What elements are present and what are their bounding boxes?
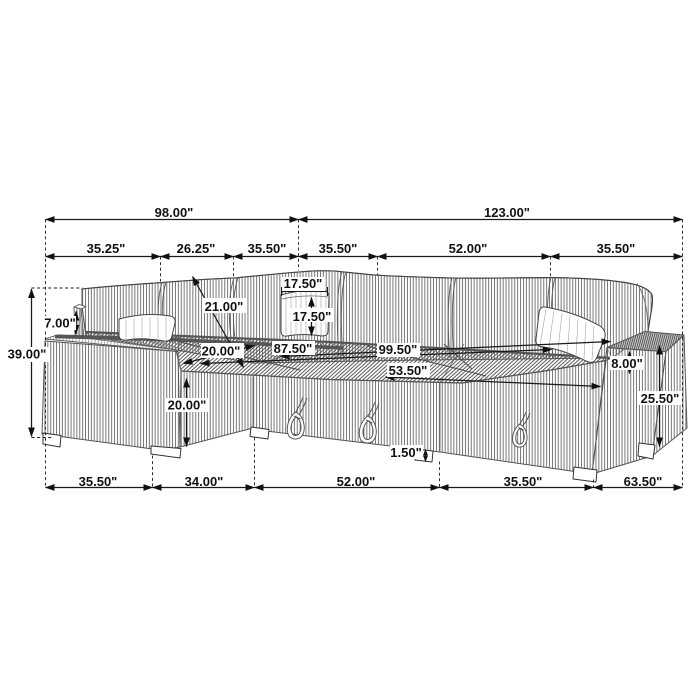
svg-text:17.50": 17.50" [284, 276, 323, 291]
svg-text:35.50": 35.50" [597, 241, 636, 256]
svg-text:35.50": 35.50" [79, 474, 118, 489]
svg-text:20.00": 20.00" [202, 344, 241, 359]
svg-text:63.50": 63.50" [624, 474, 663, 489]
svg-text:39.00": 39.00" [8, 347, 47, 362]
svg-text:8.00": 8.00" [611, 356, 642, 371]
svg-text:99.50": 99.50" [379, 342, 418, 357]
svg-text:35.50": 35.50" [248, 241, 287, 256]
svg-text:35.50": 35.50" [504, 474, 543, 489]
svg-text:34.00": 34.00" [185, 474, 224, 489]
svg-text:17.50": 17.50" [293, 309, 332, 324]
svg-text:52.00": 52.00" [449, 241, 488, 256]
svg-text:35.50": 35.50" [319, 241, 358, 256]
svg-text:1.50": 1.50" [390, 445, 421, 460]
svg-text:20.00": 20.00" [168, 398, 207, 413]
svg-text:21.00": 21.00" [205, 299, 244, 314]
svg-text:25.50": 25.50" [641, 391, 680, 406]
svg-text:123.00": 123.00" [484, 205, 530, 220]
svg-text:35.25": 35.25" [87, 241, 126, 256]
svg-text:87.50": 87.50" [274, 341, 313, 356]
svg-text:52.00": 52.00" [337, 474, 376, 489]
svg-text:53.50": 53.50" [389, 363, 428, 378]
svg-text:26.25": 26.25" [177, 241, 216, 256]
svg-text:7.00": 7.00" [44, 316, 75, 331]
svg-text:98.00": 98.00" [155, 205, 194, 220]
